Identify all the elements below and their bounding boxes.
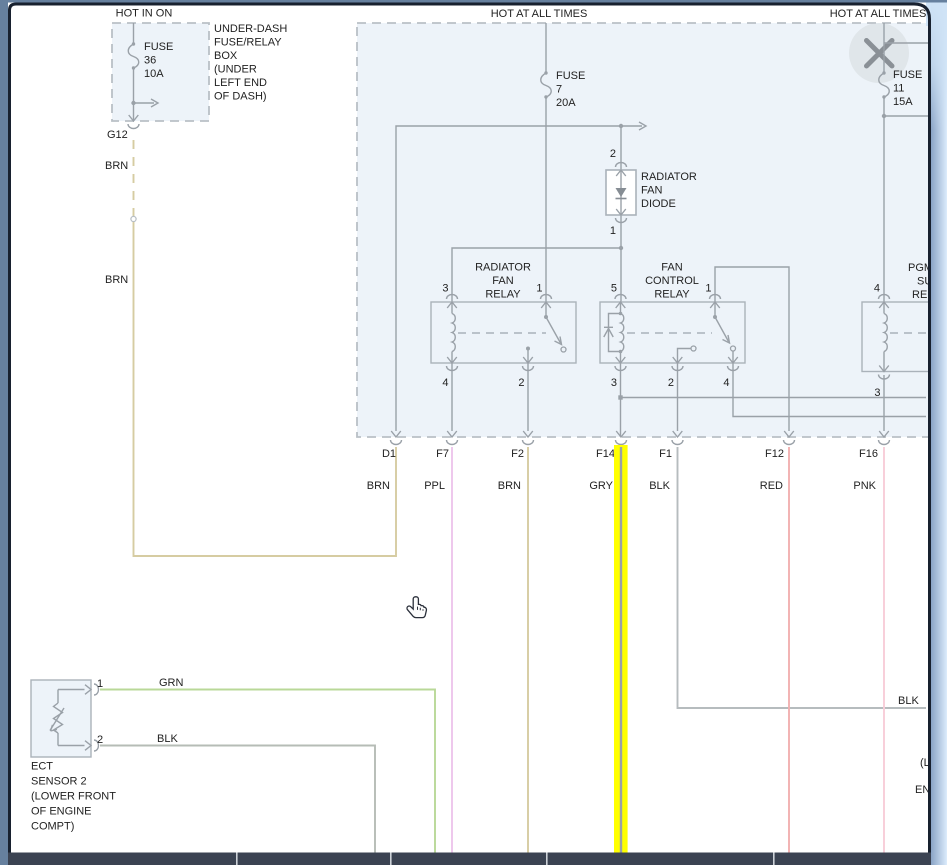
svg-text:FAN: FAN <box>492 275 513 287</box>
svg-text:ECT: ECT <box>31 761 53 773</box>
svg-text:F12: F12 <box>765 448 784 460</box>
svg-text:BRN: BRN <box>105 274 128 286</box>
svg-text:BLK: BLK <box>898 695 919 707</box>
svg-text:RADIATOR: RADIATOR <box>641 171 697 183</box>
svg-text:15A: 15A <box>893 96 913 108</box>
svg-text:7: 7 <box>556 84 562 96</box>
svg-text:4: 4 <box>874 283 880 295</box>
svg-text:BRN: BRN <box>105 160 128 172</box>
svg-text:F7: F7 <box>436 448 449 460</box>
svg-text:FUSE: FUSE <box>556 70 585 82</box>
svg-text:1: 1 <box>536 283 542 295</box>
svg-text:F2: F2 <box>511 448 524 460</box>
svg-text:UNDER-DASH: UNDER-DASH <box>214 23 287 35</box>
svg-text:4: 4 <box>442 377 448 389</box>
svg-text:BRN: BRN <box>498 480 521 492</box>
svg-text:5: 5 <box>611 283 617 295</box>
svg-text:CONTROL: CONTROL <box>645 275 699 287</box>
svg-text:BOX: BOX <box>214 50 238 62</box>
svg-text:FAN: FAN <box>661 262 682 274</box>
svg-text:F14: F14 <box>596 448 615 460</box>
svg-text:RELAY: RELAY <box>654 289 690 301</box>
svg-text:PNK: PNK <box>853 480 876 492</box>
svg-text:DIODE: DIODE <box>641 198 676 210</box>
svg-text:FAN: FAN <box>641 185 662 197</box>
svg-text:RED: RED <box>760 480 783 492</box>
svg-text:2: 2 <box>610 148 616 160</box>
svg-text:36: 36 <box>144 55 156 67</box>
svg-text:F16: F16 <box>859 448 878 460</box>
svg-text:BLK: BLK <box>649 480 670 492</box>
svg-text:FUSE/RELAY: FUSE/RELAY <box>214 37 282 49</box>
svg-text:1: 1 <box>97 678 103 690</box>
svg-text:FUSE: FUSE <box>893 69 922 81</box>
svg-text:F1: F1 <box>659 448 672 460</box>
svg-text:FUSE: FUSE <box>144 41 173 53</box>
svg-text:SENSOR 2: SENSOR 2 <box>31 776 87 788</box>
svg-text:10A: 10A <box>144 68 164 80</box>
svg-text:2: 2 <box>668 377 674 389</box>
svg-text:D1: D1 <box>382 448 396 460</box>
svg-text:1: 1 <box>610 225 616 237</box>
svg-text:LEFT END: LEFT END <box>214 77 267 89</box>
svg-text:3: 3 <box>442 283 448 295</box>
svg-text:OF DASH): OF DASH) <box>214 91 267 103</box>
svg-text:PPL: PPL <box>424 480 445 492</box>
svg-text:GRN: GRN <box>159 677 184 689</box>
svg-text:11: 11 <box>893 83 904 95</box>
svg-text:3: 3 <box>611 377 617 389</box>
svg-text:G12: G12 <box>107 129 128 141</box>
svg-text:(LOWER FRONT: (LOWER FRONT <box>31 791 116 803</box>
svg-text:BRN: BRN <box>367 480 390 492</box>
svg-text:HOT AT ALL TIMES: HOT AT ALL TIMES <box>491 8 588 20</box>
svg-text:BLK: BLK <box>157 733 178 745</box>
svg-text:2: 2 <box>518 377 524 389</box>
svg-text:4: 4 <box>723 377 729 389</box>
svg-text:HOT IN ON: HOT IN ON <box>116 8 173 20</box>
svg-text:RADIATOR: RADIATOR <box>475 262 531 274</box>
svg-text:GRY: GRY <box>589 480 613 492</box>
svg-text:HOT AT ALL TIMES: HOT AT ALL TIMES <box>830 8 927 20</box>
svg-text:20A: 20A <box>556 97 576 109</box>
svg-text:OF ENGINE: OF ENGINE <box>31 806 92 818</box>
svg-text:2: 2 <box>97 734 103 746</box>
svg-text:1: 1 <box>705 283 711 295</box>
svg-text:(UNDER: (UNDER <box>214 64 257 76</box>
svg-text:RELAY: RELAY <box>485 289 521 301</box>
svg-text:COMPT): COMPT) <box>31 821 74 833</box>
